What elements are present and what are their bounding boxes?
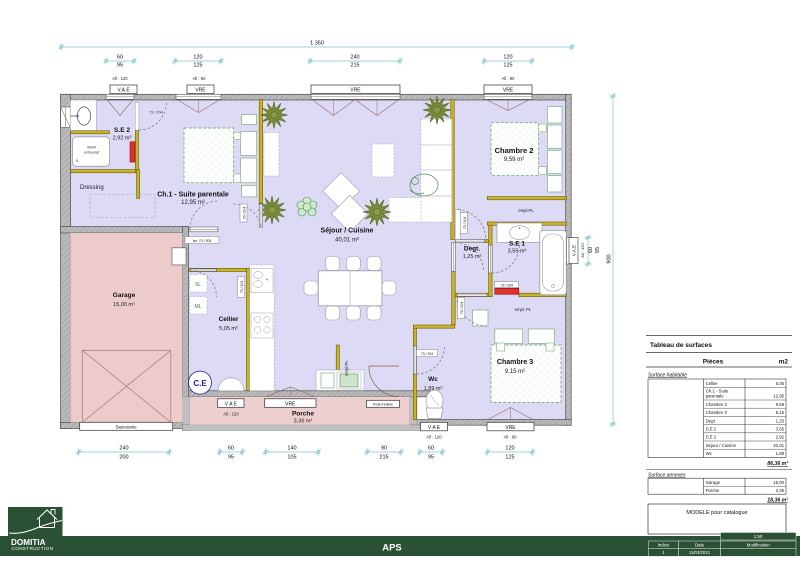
svg-text:1,25 m²: 1,25 m² [463, 254, 482, 260]
svg-text:3,36 m²: 3,36 m² [294, 419, 313, 425]
svg-text:empl.PL: empl.PL [518, 208, 534, 213]
svg-text:95: 95 [228, 455, 234, 461]
svg-text:90: 90 [381, 446, 387, 452]
svg-text:1 350: 1 350 [310, 41, 324, 47]
svg-text:9,59: 9,59 [776, 402, 785, 407]
svg-text:Chambre 2: Chambre 2 [495, 146, 534, 155]
svg-text:200: 200 [119, 455, 128, 461]
svg-text:60: 60 [428, 446, 434, 452]
svg-text:5,05: 5,05 [776, 381, 785, 386]
svg-text:15,00 m²: 15,00 m² [113, 302, 135, 308]
svg-text:215: 215 [379, 455, 388, 461]
svg-text:18,36 m²: 18,36 m² [767, 498, 788, 504]
svg-text:60: 60 [588, 247, 594, 253]
svg-text:Degt.: Degt. [464, 246, 480, 253]
svg-text:1,25: 1,25 [776, 418, 785, 423]
svg-text:S.E 2: S.E 2 [706, 435, 717, 440]
svg-text:empl. PL: empl. PL [515, 307, 532, 312]
svg-text:SL: SL [195, 282, 201, 288]
svg-text:140: 140 [287, 446, 296, 452]
svg-text:73 / 204: 73 / 204 [501, 283, 513, 287]
svg-text:Chambre 2: Chambre 2 [706, 402, 728, 407]
svg-text:Date: Date [695, 543, 705, 548]
svg-text:240: 240 [350, 55, 359, 61]
svg-text:m2: m2 [779, 359, 789, 366]
svg-text:Cellier: Cellier [219, 316, 239, 323]
svg-text:12,95 m²: 12,95 m² [181, 200, 205, 206]
svg-text:60: 60 [228, 446, 234, 452]
svg-text:125: 125 [193, 63, 202, 69]
svg-text:73 / 204: 73 / 204 [149, 111, 163, 115]
svg-text:9,59 m²: 9,59 m² [504, 157, 524, 163]
svg-text:All : 120: All : 120 [223, 412, 239, 417]
svg-text:12,95: 12,95 [773, 394, 784, 399]
svg-text:Dressing: Dressing [80, 185, 104, 191]
svg-text:Indice: Indice [658, 543, 670, 548]
svg-text:Pièces: Pièces [703, 359, 724, 366]
svg-text:Surface annexes: Surface annexes [648, 473, 686, 479]
svg-text:Porte d'entrée: Porte d'entrée [373, 402, 393, 406]
svg-text:Chambre 3: Chambre 3 [706, 410, 728, 415]
svg-text:V A E: V A E [428, 425, 441, 431]
svg-text:extra-plat: extra-plat [84, 151, 99, 155]
svg-text:All : 120: All : 120 [580, 242, 585, 257]
svg-text:APS: APS [382, 543, 402, 554]
svg-text:95: 95 [595, 247, 601, 253]
svg-text:5,05 m²: 5,05 m² [219, 326, 238, 332]
svg-text:Cellier: Cellier [706, 381, 719, 386]
svg-text:60: 60 [117, 55, 123, 61]
svg-text:73 / 204: 73 / 204 [463, 217, 467, 229]
svg-text:215: 215 [350, 63, 359, 69]
svg-text:VRE: VRE [285, 401, 296, 407]
svg-text:C.E: C.E [193, 379, 207, 388]
svg-text:All : 120: All : 120 [426, 435, 442, 440]
svg-text:Garage: Garage [113, 292, 136, 299]
svg-text:VRE: VRE [195, 88, 206, 94]
svg-text:73 / 204: 73 / 204 [421, 352, 433, 356]
svg-text:Basculante: Basculante [116, 424, 137, 429]
svg-text:9,15 m²: 9,15 m² [505, 369, 525, 375]
svg-text:90/90: 90/90 [87, 146, 96, 150]
svg-text:240: 240 [119, 446, 128, 452]
svg-text:V A E: V A E [225, 401, 238, 407]
svg-text:9,15: 9,15 [776, 410, 785, 415]
svg-text:Modification: Modification [747, 543, 771, 548]
svg-text:VRE: VRE [505, 425, 516, 431]
svg-text:73 / 204: 73 / 204 [460, 302, 464, 314]
svg-text:11/03/2021: 11/03/2021 [689, 550, 711, 555]
svg-text:MODELE pour catalogue: MODELE pour catalogue [686, 510, 747, 516]
svg-text:Degt: Degt [706, 418, 716, 423]
svg-text:Ch.1 - Suite parentale: Ch.1 - Suite parentale [157, 192, 229, 199]
svg-text:Séjour / Cuisine: Séjour / Cuisine [706, 443, 737, 448]
svg-text:3,55: 3,55 [776, 427, 785, 432]
svg-text:Surface habitable: Surface habitable [648, 373, 687, 379]
svg-text:15,00: 15,00 [773, 480, 784, 485]
svg-text:120: 120 [193, 55, 202, 61]
svg-text:1,89: 1,89 [776, 451, 785, 456]
svg-text:2,92: 2,92 [776, 435, 785, 440]
svg-text:All : 90: All : 90 [193, 76, 206, 81]
svg-text:Séjour / Cuisine: Séjour / Cuisine [321, 228, 374, 235]
svg-text:CONSTRUCTION: CONSTRUCTION [12, 546, 54, 551]
svg-text:parentale: parentale [706, 394, 725, 399]
svg-text:86,36 m²: 86,36 m² [767, 461, 788, 467]
svg-text:V.A.E: V.A.E [117, 88, 130, 94]
svg-text:V.A.E: V.A.E [572, 245, 577, 256]
svg-text:40,01 m²: 40,01 m² [335, 238, 359, 244]
svg-text:3,36: 3,36 [776, 488, 785, 493]
svg-text:1,89 m²: 1,89 m² [424, 386, 443, 392]
svg-text:empl.PL: empl.PL [344, 360, 349, 376]
svg-text:900: 900 [607, 254, 613, 263]
svg-text:Porche: Porche [292, 411, 314, 418]
svg-text:S.E 1: S.E 1 [509, 241, 525, 248]
svg-text:All : 90: All : 90 [504, 435, 517, 440]
svg-text:Wc: Wc [706, 451, 713, 456]
svg-text:Chambre 3: Chambre 3 [497, 359, 533, 366]
svg-text:95: 95 [428, 455, 434, 461]
svg-text:2,92 m²: 2,92 m² [113, 136, 132, 142]
svg-text:All : 90: All : 90 [502, 76, 515, 81]
svg-text:125: 125 [503, 63, 512, 69]
svg-text:VRE: VRE [503, 88, 514, 94]
svg-text:3,55 m²: 3,55 m² [508, 249, 527, 255]
svg-text:95: 95 [117, 63, 123, 69]
svg-text:S.E 2: S.E 2 [114, 127, 130, 134]
svg-text:S.E 1: S.E 1 [706, 427, 717, 432]
svg-text:1:50: 1:50 [754, 534, 763, 539]
svg-text:40,01: 40,01 [773, 443, 784, 448]
svg-text:73 / 204: 73 / 204 [243, 207, 247, 219]
svg-text:125: 125 [505, 455, 514, 461]
svg-text:105: 105 [287, 455, 296, 461]
svg-text:73 / 204: 73 / 204 [240, 281, 244, 293]
svg-text:All : 120: All : 120 [112, 76, 128, 81]
svg-text:VRE: VRE [350, 88, 361, 94]
svg-text:Wc: Wc [428, 376, 438, 383]
svg-text:iso. 73 / 204: iso. 73 / 204 [193, 239, 212, 243]
svg-text:ML: ML [195, 304, 202, 310]
svg-text:120: 120 [503, 55, 512, 61]
svg-text:120: 120 [505, 446, 514, 452]
svg-text:Garage: Garage [706, 480, 721, 485]
svg-text:Tableau de surfaces: Tableau de surfaces [650, 342, 712, 349]
svg-text:Porche: Porche [706, 488, 720, 493]
